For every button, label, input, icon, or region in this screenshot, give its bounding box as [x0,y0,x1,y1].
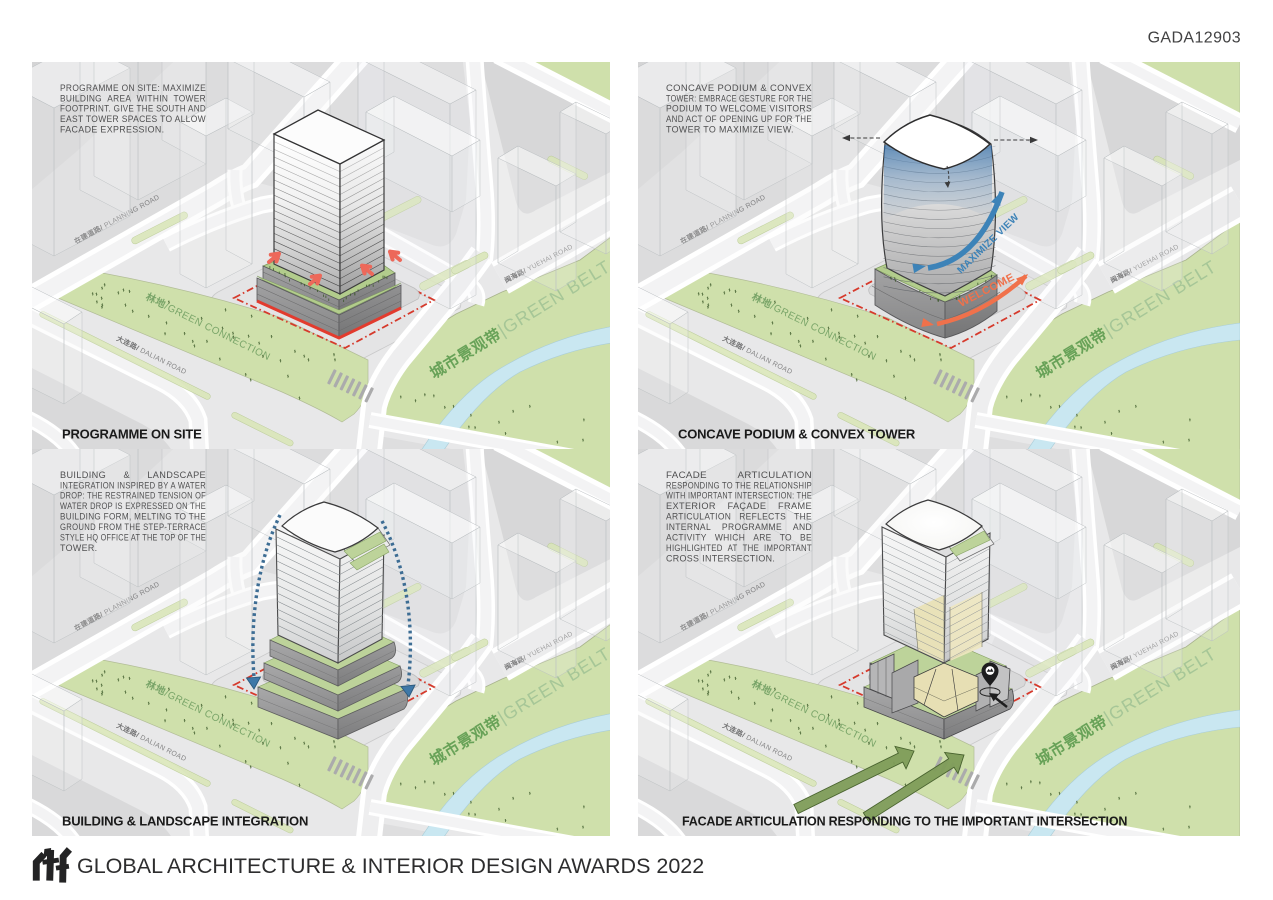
svg-text:FACADE EXPRESSION.: FACADE EXPRESSION. [60,125,164,135]
svg-text:HIGHLIGHTED AT THE IMPORTAN: HIGHLIGHTED AT THE IMPORTANT [666,543,812,553]
svg-text:EXTERIOR FAÇADE FRAME: EXTERIOR FAÇADE FRAME [666,501,812,511]
svg-text:BUILDING FORM, MELTING TO THE: BUILDING FORM, MELTING TO THE [60,512,206,522]
svg-text:PROGRAMME ON SITE: MAXIMIZE: PROGRAMME ON SITE: MAXIMIZE [60,83,206,93]
svg-text:INTEGRATION INSPIRED BY A WATE: INTEGRATION INSPIRED BY A WATER [60,480,206,490]
svg-text:CROSS INTERSECTION.: CROSS INTERSECTION. [666,553,775,563]
svg-text:EAST TOWER SPACES TO ALLOW: EAST TOWER SPACES TO ALLOW [60,114,206,124]
svg-text:AND ACT OF OPENING UP FOR THE: AND ACT OF OPENING UP FOR THE [666,114,812,124]
svg-text:GLOBAL ARCHITECTURE & INTERIOR: GLOBAL ARCHITECTURE & INTERIOR DESIGN AW… [77,854,704,878]
svg-text:GROUND FROM THE STEP-TERRACE: GROUND FROM THE STEP-TERRACE [60,522,206,532]
svg-text:RESPONDING TO THE RELATIONSHIP: RESPONDING TO THE RELATIONSHIP [666,480,812,490]
svg-text:CONCAVE PODIUM & CONVEX TOWER: CONCAVE PODIUM & CONVEX TOWER [678,427,916,442]
svg-text:FACADE ARTICULATION: FACADE ARTICULATION [666,470,812,480]
svg-text:GADA12903: GADA12903 [1148,30,1241,47]
svg-text:TOWER.: TOWER. [60,543,97,553]
svg-text:BUILDING AREA WITHIN TOWER: BUILDING AREA WITHIN TOWER [60,93,206,103]
svg-text:PROGRAMME ON SITE: PROGRAMME ON SITE [62,427,202,442]
svg-text:TOWER TO MAXIMIZE VIEW.: TOWER TO MAXIMIZE VIEW. [666,125,794,135]
svg-text:CONCAVE PODIUM & CONVEX: CONCAVE PODIUM & CONVEX [666,83,812,93]
svg-text:BUILDING & LANDSCAPE INTEGRATI: BUILDING & LANDSCAPE INTEGRATION [62,814,308,829]
svg-text:WATER DROP IS EXPRESSED ON THE: WATER DROP IS EXPRESSED ON THE [60,501,206,511]
svg-text:DROP: THE RESTRAINED TENSION O: DROP: THE RESTRAINED TENSION OF [60,491,206,501]
svg-text:FOOTPRINT. GIVE THE SOUTH AND: FOOTPRINT. GIVE THE SOUTH AND [60,104,206,114]
svg-text:WITH IMPORTANT INTERSECTION: T: WITH IMPORTANT INTERSECTION: THE [666,491,812,501]
svg-text:TOWER: EMBRACE GESTURE FOR THE: TOWER: EMBRACE GESTURE FOR THE [666,93,812,103]
svg-text:FACADE ARTICULATION RESPONDING: FACADE ARTICULATION RESPONDING TO THE IM… [682,815,1127,829]
svg-text:PODIUM TO WELCOME VISITORS: PODIUM TO WELCOME VISITORS [666,104,812,114]
svg-text:BUILDING & LANDSCAPE: BUILDING & LANDSCAPE [60,470,206,480]
svg-text:INTERNAL PROGRAMME AND: INTERNAL PROGRAMME AND [666,522,812,532]
svg-text:ACTIVITY WHICH ARE TO: ACTIVITY WHICH ARE TO BE [666,533,812,543]
svg-text:ARTICULATION REFLECTS THE: ARTICULATION REFLECTS THE [666,512,812,522]
svg-text:STYLE HQ OFFICE AT THE TOP OF: STYLE HQ OFFICE AT THE TOP OF THE [60,533,206,543]
